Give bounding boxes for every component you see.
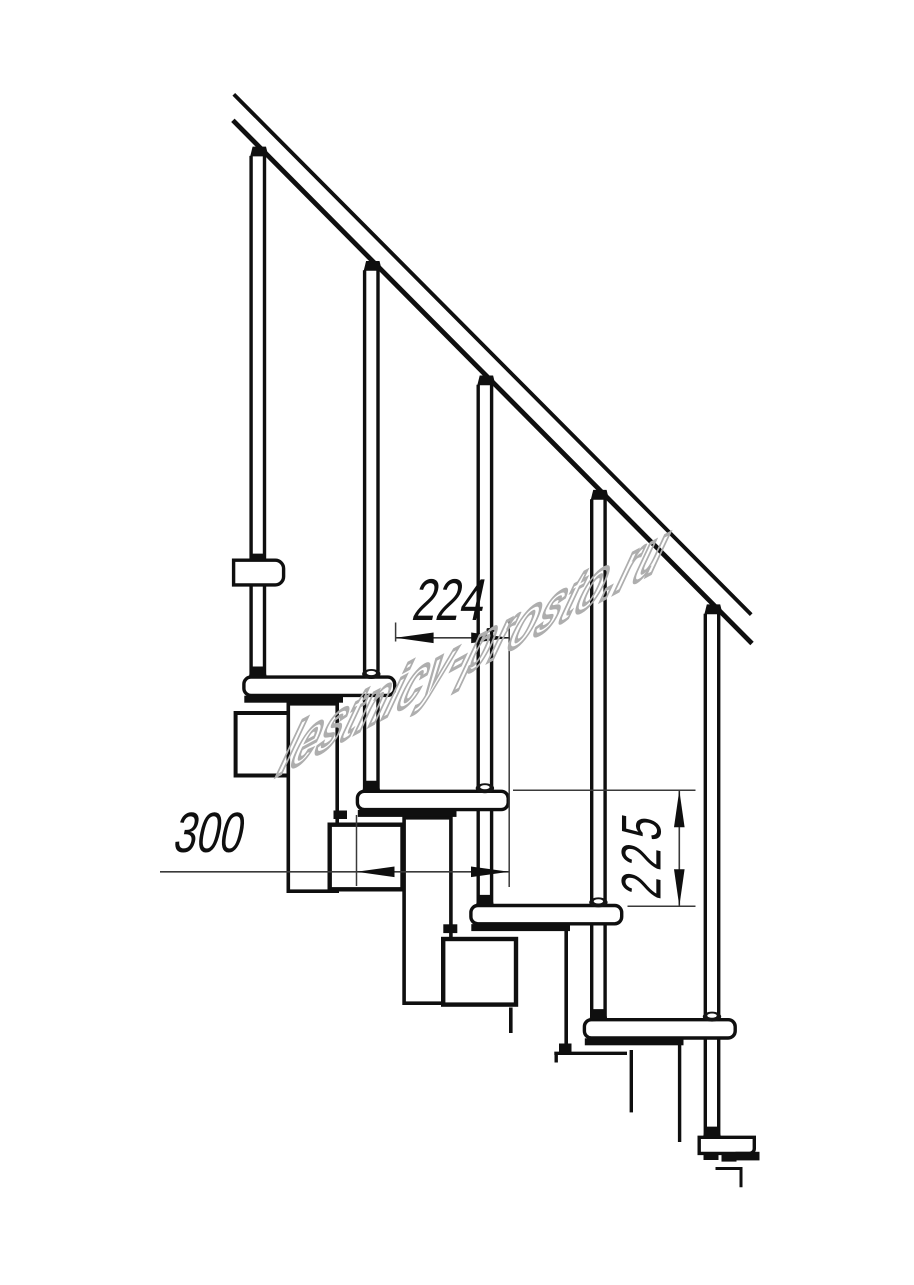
svg-text:300: 300: [169, 800, 251, 864]
svg-text:225: 225: [611, 803, 673, 903]
